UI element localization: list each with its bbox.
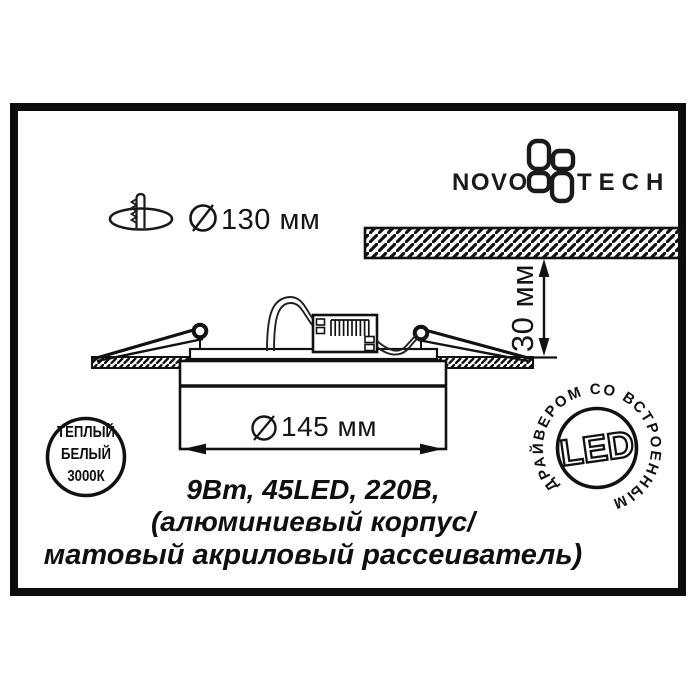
spec-sheet: ДРАЙВЕРОМ СО ВСТРОЕННЫМ LED NOVO TECH 13…	[0, 0, 700, 700]
technical-drawing: ДРАЙВЕРОМ СО ВСТРОЕННЫМ LED	[0, 0, 700, 700]
driver-box	[313, 315, 377, 352]
cutout-diameter-label: 130 мм	[221, 204, 320, 237]
recess-depth-label: 30 мм	[505, 264, 541, 352]
spec-text-block: 9Вт, 45LED, 220В, (алюминиевый корпус/ м…	[13, 474, 613, 572]
spec-line-housing: (алюминиевый корпус/	[13, 505, 613, 538]
brand-name-right: TECH	[577, 169, 670, 197]
diameter-icon-cutout	[191, 205, 216, 231]
panel-diameter-label: 145 мм	[281, 411, 377, 443]
ceiling-section	[365, 228, 680, 258]
drill-hole-icon	[110, 194, 172, 230]
brand-name-left: NOVO	[452, 169, 529, 197]
spec-line-power: 9Вт, 45LED, 220В,	[13, 474, 613, 505]
warm-white-line-1: ТЕПЛЫЙ	[52, 422, 120, 444]
spec-line-diffuser: матовый акриловый рассеиватель)	[13, 538, 613, 572]
novotech-pinwheel-icon	[529, 141, 573, 201]
warm-white-line-2: БЕЛЫЙ	[52, 444, 120, 466]
